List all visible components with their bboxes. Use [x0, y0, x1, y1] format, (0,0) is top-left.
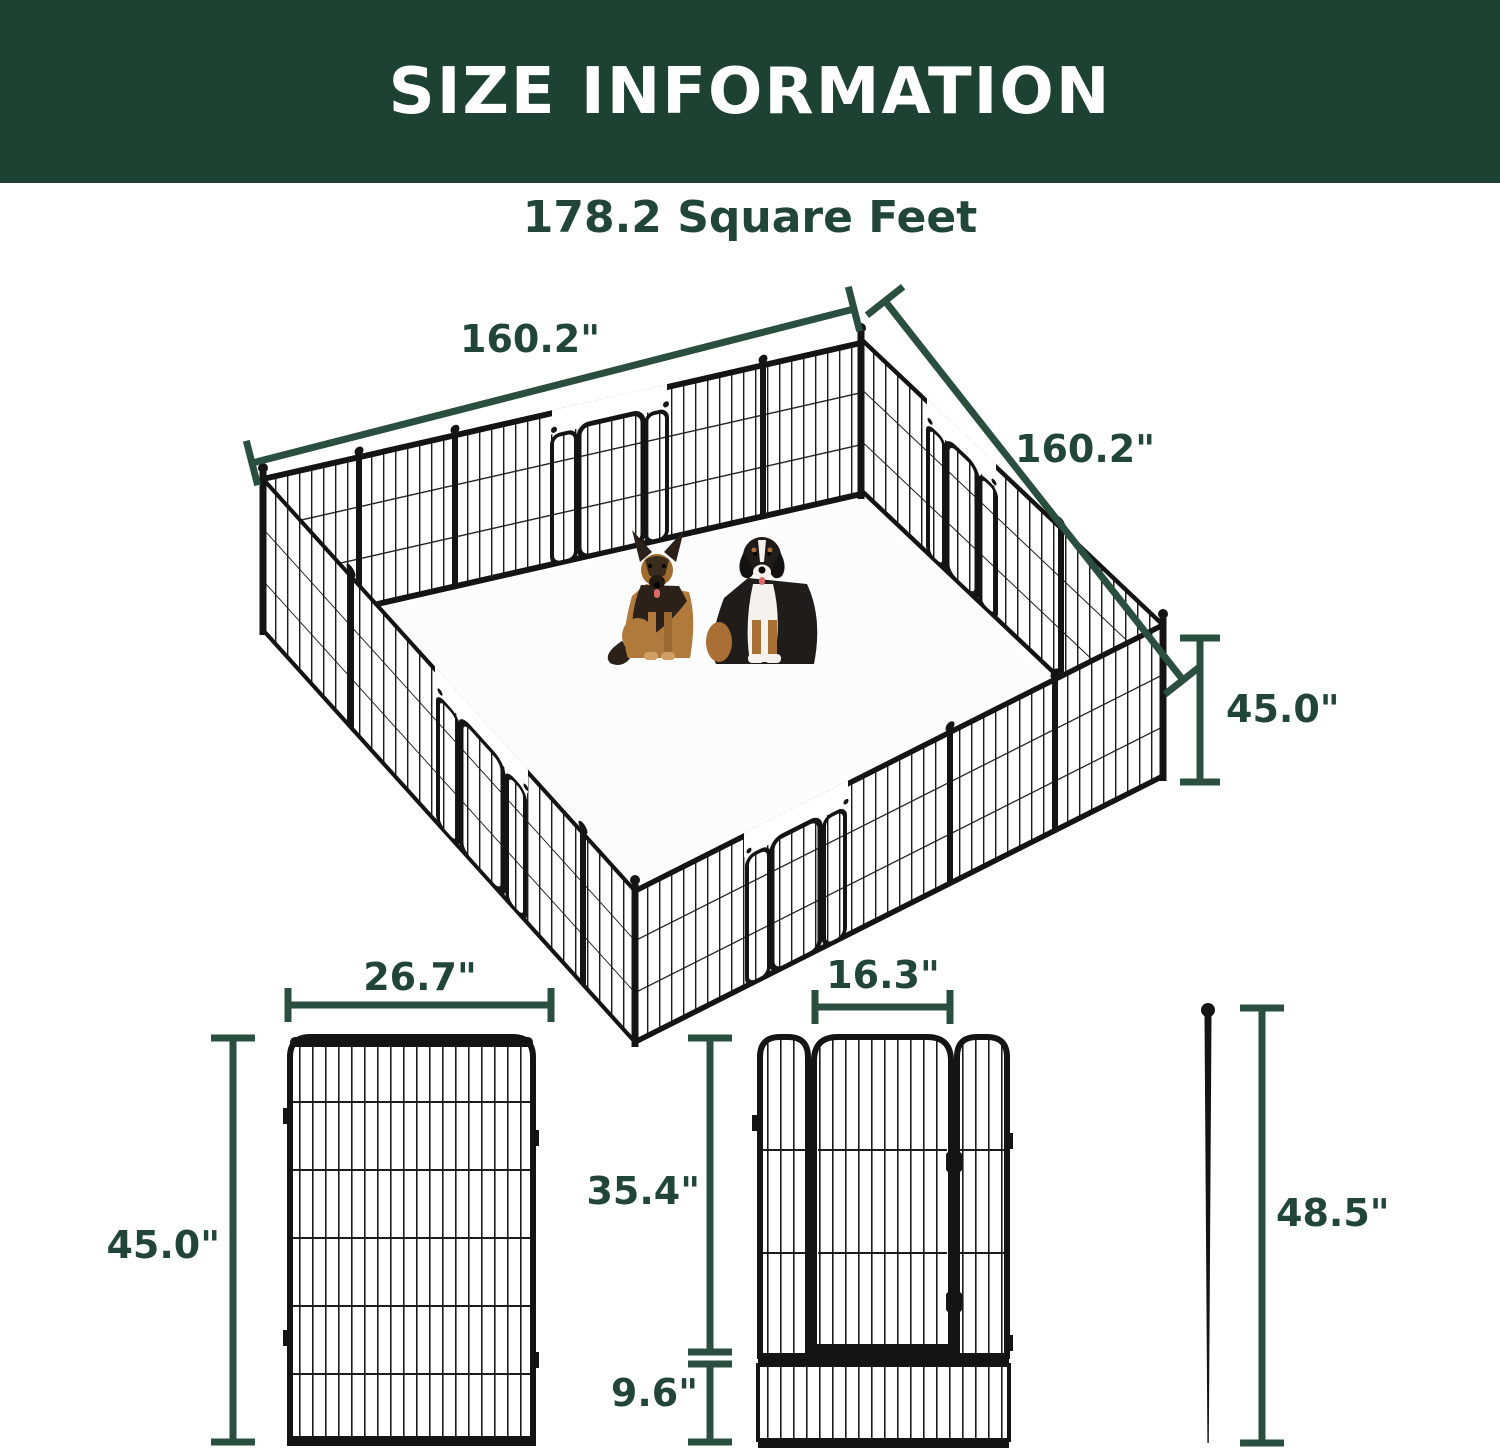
pen-door-back-left: [579, 412, 643, 559]
bottom-height-label: 9.6": [611, 1371, 698, 1415]
panel-height-label: 45.0": [106, 1223, 220, 1267]
size-diagram: 160.2" 160.2" 45.0" 26.7" 45.0": [0, 0, 1500, 1448]
dimension-bottom-height: 9.6": [611, 1364, 732, 1442]
door-width-label: 16.3": [826, 953, 940, 997]
dimension-pen-height: 45.0": [1180, 638, 1340, 782]
pen-width-label: 160.2": [460, 317, 600, 361]
stake-diagram: 48.5": [1201, 1003, 1390, 1443]
door-height-label: 35.4": [586, 1169, 700, 1213]
door-leaf: [814, 1037, 951, 1356]
dimension-panel-height: 45.0": [106, 1038, 255, 1442]
pen-height-label: 45.0": [1226, 687, 1340, 731]
panel-diagram: 26.7" 45.0": [106, 955, 551, 1446]
dimension-panel-width: 26.7": [288, 955, 551, 1022]
pen-illustration: 160.2" 160.2" 45.0": [246, 287, 1339, 1047]
pen-depth-label: 160.2": [1015, 427, 1155, 471]
pen-door-front-right: [772, 817, 820, 973]
door-left-strip: [760, 1037, 808, 1356]
door-right-strip: [957, 1037, 1007, 1356]
stake-height-label: 48.5": [1276, 1191, 1390, 1235]
dimension-stake-height: 48.5": [1240, 1008, 1390, 1443]
stake-shaft: [1205, 1016, 1212, 1443]
panel-width-label: 26.7": [363, 955, 477, 999]
dimension-door-height: 35.4": [586, 1038, 732, 1352]
pen-door-back-right: [947, 439, 977, 599]
stake-head: [1201, 1003, 1215, 1017]
panel-outline: [290, 1037, 533, 1445]
door-bottom-section: [758, 1365, 1009, 1440]
dimension-door-width: 16.3": [815, 953, 950, 1024]
